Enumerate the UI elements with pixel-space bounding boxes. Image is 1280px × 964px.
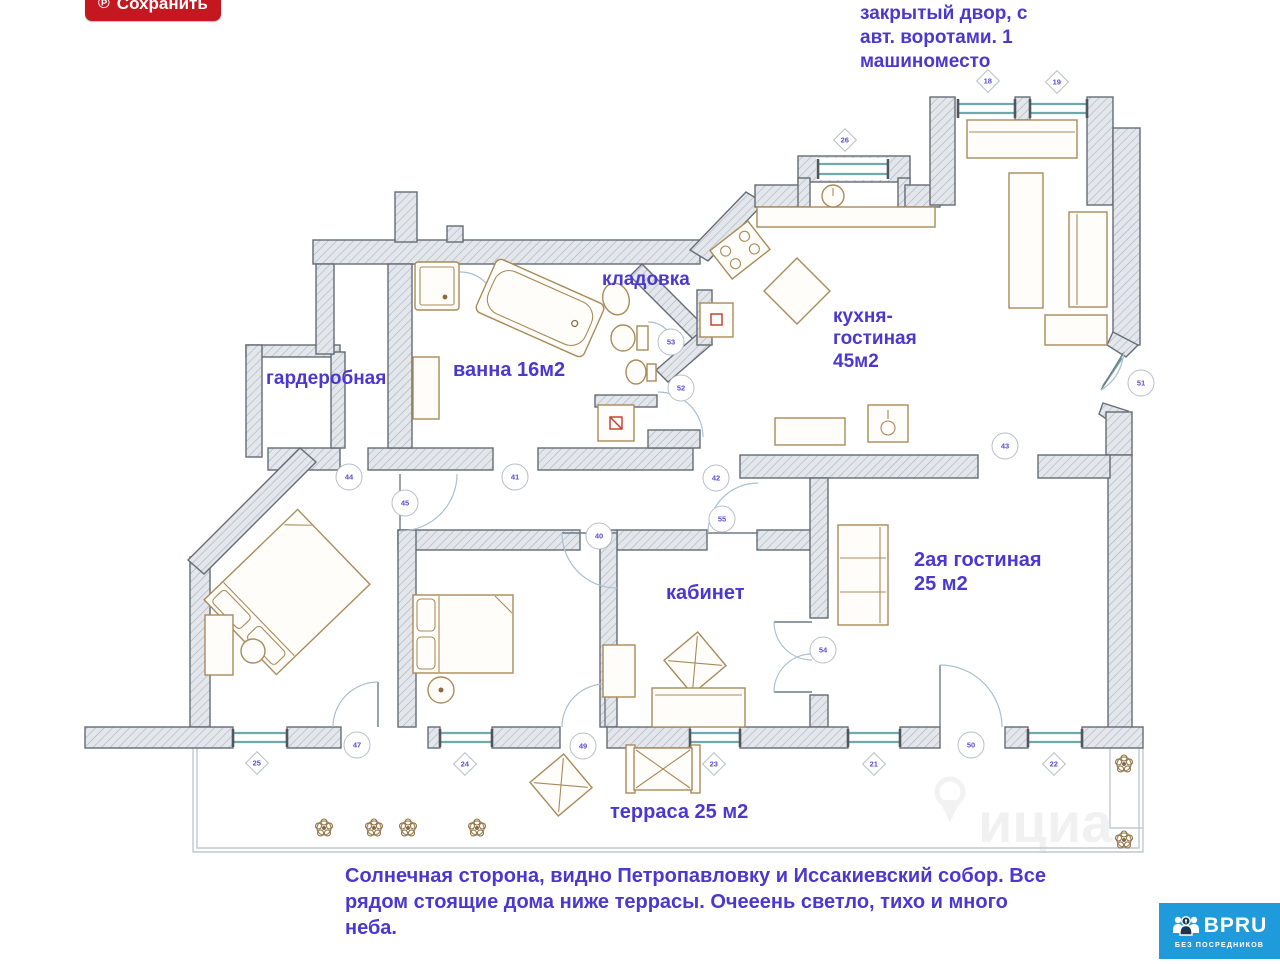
save-button-label: Сохранить: [117, 0, 208, 14]
dresser: [205, 615, 233, 675]
washing-machine: [598, 405, 634, 441]
room-label-second-living: 2ая гостиная 25 м2: [914, 549, 1042, 596]
logo-name: BPRU: [1204, 915, 1268, 936]
sideboard: [967, 120, 1077, 158]
plan-marker-45: 45: [392, 490, 419, 517]
sofa: [838, 525, 888, 625]
plant: [469, 819, 486, 836]
plan-marker-40: 40: [586, 523, 613, 550]
note-courtyard: закрытый двор, с авт. воротами. 1 машино…: [860, 2, 1027, 74]
pinterest-icon: ℗: [98, 0, 110, 12]
plan-marker-47: 47: [344, 732, 371, 759]
shelf: [603, 645, 635, 697]
boiler: [700, 303, 733, 337]
plant: [1116, 831, 1133, 848]
plant: [316, 819, 333, 836]
shower: [415, 262, 459, 310]
plan-marker-50: 50: [958, 732, 985, 759]
plan-marker-53: 53: [658, 329, 685, 356]
round-table: [241, 639, 265, 663]
room-label-terrace: терраса 25 м2: [610, 801, 748, 825]
island: [1009, 173, 1043, 308]
plan-marker-43: 43: [992, 433, 1019, 460]
logo-tagline: БЕЗ ПОСРЕДНИКОВ: [1175, 940, 1264, 949]
room-label-wardrobe: гардеробная: [266, 368, 386, 390]
plan-marker-41: 41: [502, 464, 529, 491]
plan-marker-51: 51: [1128, 370, 1155, 397]
tv-stand: [775, 418, 845, 445]
bed-2: [413, 595, 513, 673]
bar-sink: [868, 405, 908, 442]
plan-marker-44: 44: [336, 464, 363, 491]
watermark: ициа: [937, 779, 1113, 854]
terrace-chair: [530, 754, 592, 816]
plant: [366, 819, 383, 836]
terrace-lounger: [626, 745, 700, 793]
room-label-kitchen-living: кухня- гостиная 45м2: [833, 306, 917, 373]
plan-marker-52: 52: [668, 375, 695, 402]
plant: [400, 819, 417, 836]
room-label-kladovka: кладовка: [602, 269, 690, 291]
desk: [652, 688, 745, 727]
counter: [757, 207, 935, 227]
plant: [1116, 755, 1133, 772]
room-label-office: кабинет: [666, 582, 745, 606]
note-description: Солнечная сторона, видно Петропавловку и…: [345, 863, 1046, 941]
plan-marker-42: 42: [703, 465, 730, 492]
bathtub: [474, 258, 605, 359]
bpru-logo: BPRU БЕЗ ПОСРЕДНИКОВ: [1159, 903, 1280, 959]
watermark-letters: ициа: [978, 791, 1113, 854]
plan-marker-49: 49: [570, 733, 597, 760]
wc-fixtures: [599, 280, 656, 384]
tall-cabinet: [1069, 212, 1107, 307]
plan-marker-55: 55: [709, 506, 736, 533]
room-label-bath: ванна 16м2: [453, 359, 565, 383]
save-button[interactable]: ℗ Сохранить: [85, 0, 221, 21]
floorplan-page: ициа: [0, 0, 1280, 959]
kitchen-table: [764, 258, 830, 324]
cabinet: [413, 357, 439, 419]
people-icon: [1172, 914, 1200, 937]
plan-marker-54: 54: [810, 637, 837, 664]
armchair: [664, 632, 726, 694]
